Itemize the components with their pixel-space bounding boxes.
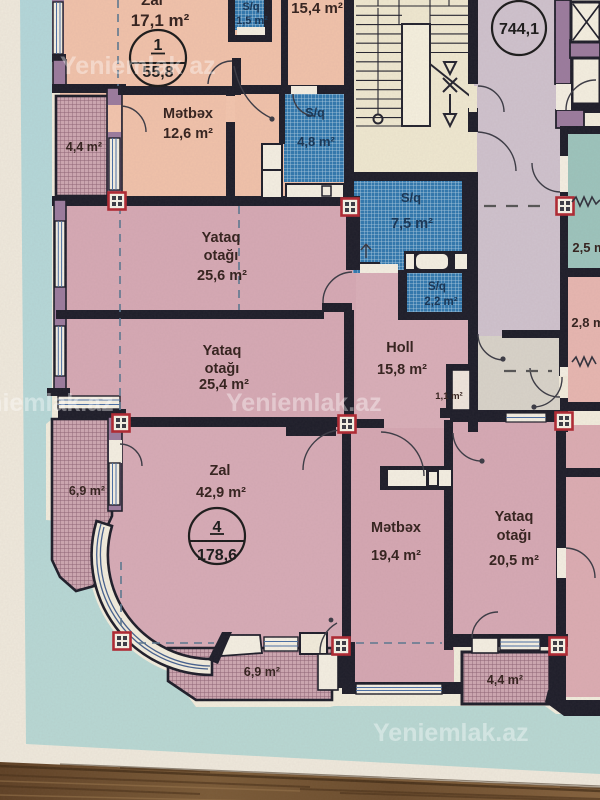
svg-text:Yeniemlak az: Yeniemlak az — [60, 52, 216, 80]
svg-text:Yeniemlak.az: Yeniemlak.az — [373, 719, 529, 747]
svg-text:Yeniemlak.az: Yeniemlak.az — [226, 389, 382, 417]
svg-text:Yeniemlak.az: Yeniemlak.az — [0, 389, 114, 417]
